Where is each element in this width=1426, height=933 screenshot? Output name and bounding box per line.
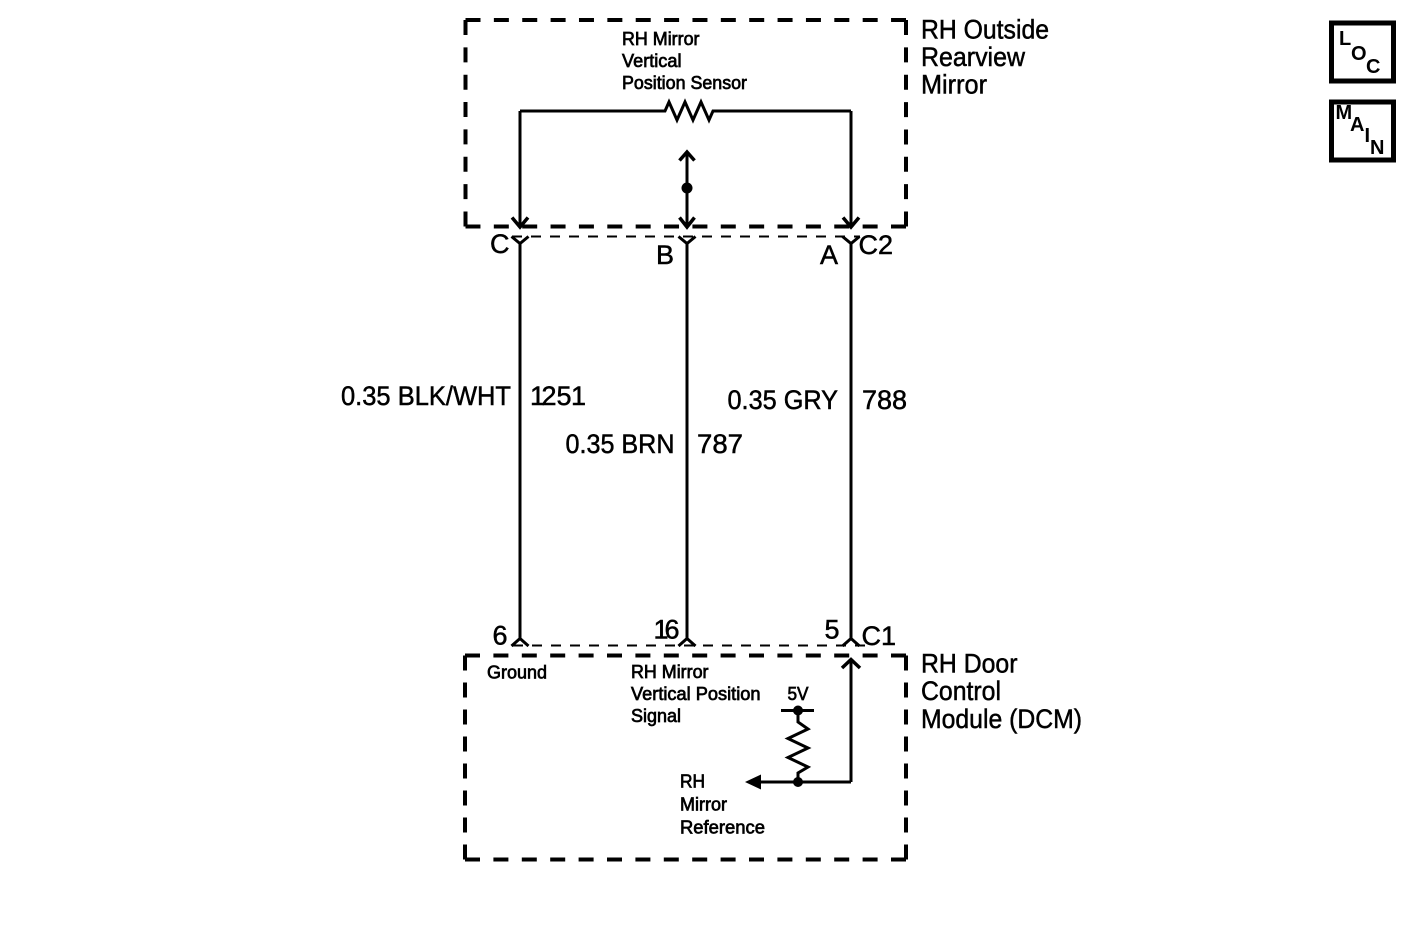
svg-text:Rearview: Rearview: [921, 42, 1025, 72]
svg-text:O: O: [1351, 43, 1367, 65]
svg-text:0.35 GRY: 0.35 GRY: [728, 385, 839, 415]
svg-text:RH Mirror: RH Mirror: [622, 29, 700, 49]
svg-text:B: B: [656, 240, 674, 270]
svg-text:RH: RH: [680, 772, 705, 792]
svg-text:A: A: [1350, 114, 1364, 136]
svg-text:A: A: [820, 240, 838, 270]
svg-text:RH Door: RH Door: [921, 649, 1018, 679]
svg-text:0.35 BLK/WHT: 0.35 BLK/WHT: [341, 381, 511, 411]
svg-text:2: 2: [542, 381, 557, 411]
svg-text:Ground: Ground: [487, 663, 547, 683]
svg-text:RH Outside: RH Outside: [921, 15, 1049, 45]
svg-text:C: C: [490, 229, 510, 259]
svg-text:6: 6: [665, 615, 680, 645]
svg-text:5V: 5V: [788, 684, 809, 704]
svg-text:Module (DCM): Module (DCM): [921, 704, 1082, 734]
svg-text:N: N: [1370, 137, 1384, 159]
svg-text:Signal: Signal: [631, 706, 681, 726]
svg-text:C1: C1: [862, 621, 897, 651]
svg-text:Control: Control: [921, 676, 1001, 706]
svg-text:C2: C2: [859, 230, 894, 260]
svg-text:787: 787: [697, 429, 743, 459]
svg-text:5: 5: [825, 615, 840, 645]
svg-text:C: C: [1366, 56, 1380, 78]
svg-text:L: L: [1339, 28, 1351, 50]
svg-text:Reference: Reference: [680, 818, 765, 838]
svg-text:Mirror: Mirror: [680, 795, 727, 815]
svg-text:1: 1: [571, 381, 586, 411]
svg-text:6: 6: [493, 621, 508, 651]
svg-text:5: 5: [557, 381, 572, 411]
svg-text:Position Sensor: Position Sensor: [622, 73, 747, 93]
svg-text:Vertical Position: Vertical Position: [631, 684, 761, 704]
svg-text:RH Mirror: RH Mirror: [631, 662, 709, 682]
svg-text:0.35 BRN: 0.35 BRN: [566, 429, 675, 459]
svg-text:Vertical: Vertical: [622, 51, 682, 71]
svg-text:Mirror: Mirror: [921, 70, 987, 100]
svg-text:788: 788: [862, 385, 907, 415]
